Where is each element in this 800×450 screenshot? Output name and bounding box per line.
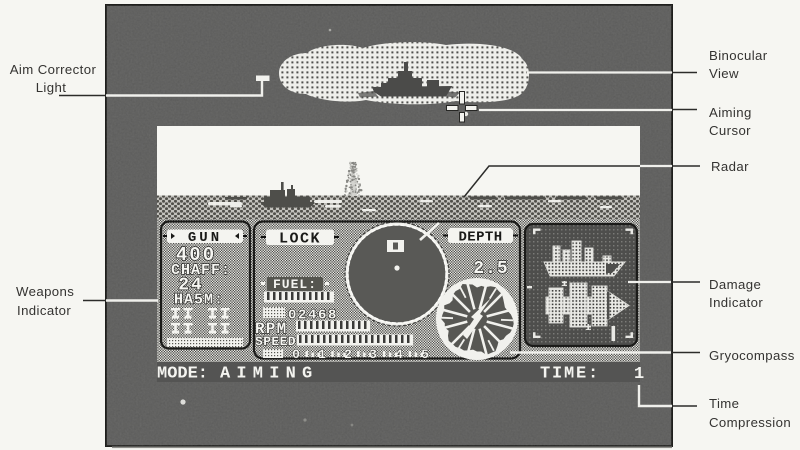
svg-text:2.5: 2.5 [473, 259, 508, 279]
svg-text:LOCK: LOCK [279, 231, 321, 248]
svg-text:AIMING: AIMING [220, 365, 318, 384]
svg-text:Indicator: Indicator [17, 303, 71, 318]
svg-text:FUEL:: FUEL: [273, 277, 317, 292]
svg-text:Compression: Compression [709, 415, 791, 430]
svg-text:Aiming: Aiming [709, 105, 752, 120]
svg-text:HA5M:: HA5M: [174, 292, 224, 309]
svg-text:Cursor: Cursor [709, 123, 751, 138]
svg-text:View: View [709, 66, 739, 81]
svg-text:Radar: Radar [711, 159, 749, 174]
svg-text:Weapons: Weapons [16, 284, 74, 299]
svg-text:TIME:: TIME: [540, 365, 600, 384]
svg-text:SPEED: SPEED [255, 334, 296, 349]
svg-text:Binocular: Binocular [709, 48, 768, 63]
svg-text:Time: Time [709, 396, 739, 411]
svg-text:Gryocompass: Gryocompass [709, 348, 795, 363]
svg-text:DEPTH: DEPTH [458, 230, 502, 246]
svg-text:Aim Corrector: Aim Corrector [10, 62, 97, 77]
svg-text:Light: Light [36, 80, 67, 95]
svg-text:Indicator: Indicator [709, 295, 763, 310]
svg-text:1: 1 [634, 365, 644, 384]
svg-text:0: 0 [292, 347, 300, 362]
svg-text:MODE:: MODE: [157, 365, 208, 384]
svg-text:Damage: Damage [709, 277, 761, 292]
